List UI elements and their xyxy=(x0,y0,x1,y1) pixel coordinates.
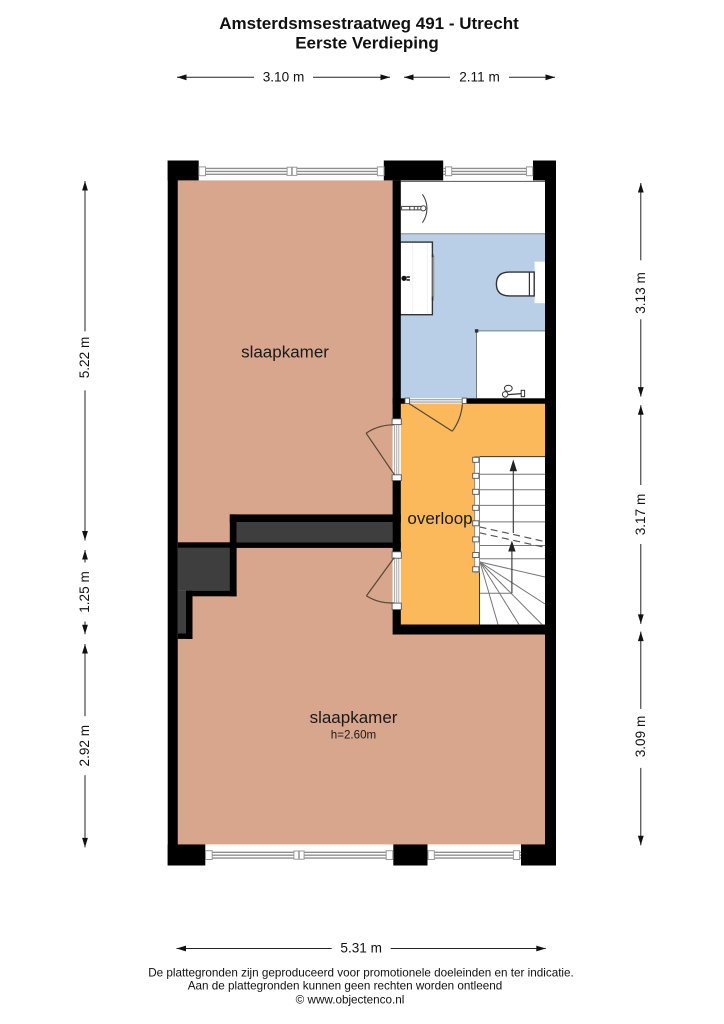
svg-text:slaapkamer: slaapkamer xyxy=(310,708,398,727)
svg-text:5.22 m: 5.22 m xyxy=(77,337,92,379)
svg-text:Amsterdsmsestraatweg 491 - Utr: Amsterdsmsestraatweg 491 - Utrecht xyxy=(219,14,519,33)
svg-text:Eerste Verdieping: Eerste Verdieping xyxy=(295,34,439,53)
svg-text:2.11 m: 2.11 m xyxy=(459,70,500,85)
svg-text:De plattegronden zijn geproduc: De plattegronden zijn geproduceerd voor … xyxy=(148,966,574,979)
svg-text:h=2.60m: h=2.60m xyxy=(331,728,376,741)
svg-text:2.92 m: 2.92 m xyxy=(77,725,92,767)
svg-text:© www.objectenco.nl: © www.objectenco.nl xyxy=(296,993,405,1006)
svg-text:3.10 m: 3.10 m xyxy=(263,70,305,85)
svg-text:5.31 m: 5.31 m xyxy=(340,941,382,956)
svg-text:overloop: overloop xyxy=(407,509,472,528)
svg-text:3.17 m: 3.17 m xyxy=(633,494,648,536)
svg-text:slaapkamer: slaapkamer xyxy=(241,343,329,362)
svg-text:1.25 m: 1.25 m xyxy=(77,571,92,613)
svg-text:3.13 m: 3.13 m xyxy=(633,272,648,314)
svg-text:Aan de plattegronden kunnen ge: Aan de plattegronden kunnen geen rechten… xyxy=(188,980,503,993)
svg-text:3.09 m: 3.09 m xyxy=(633,716,648,758)
